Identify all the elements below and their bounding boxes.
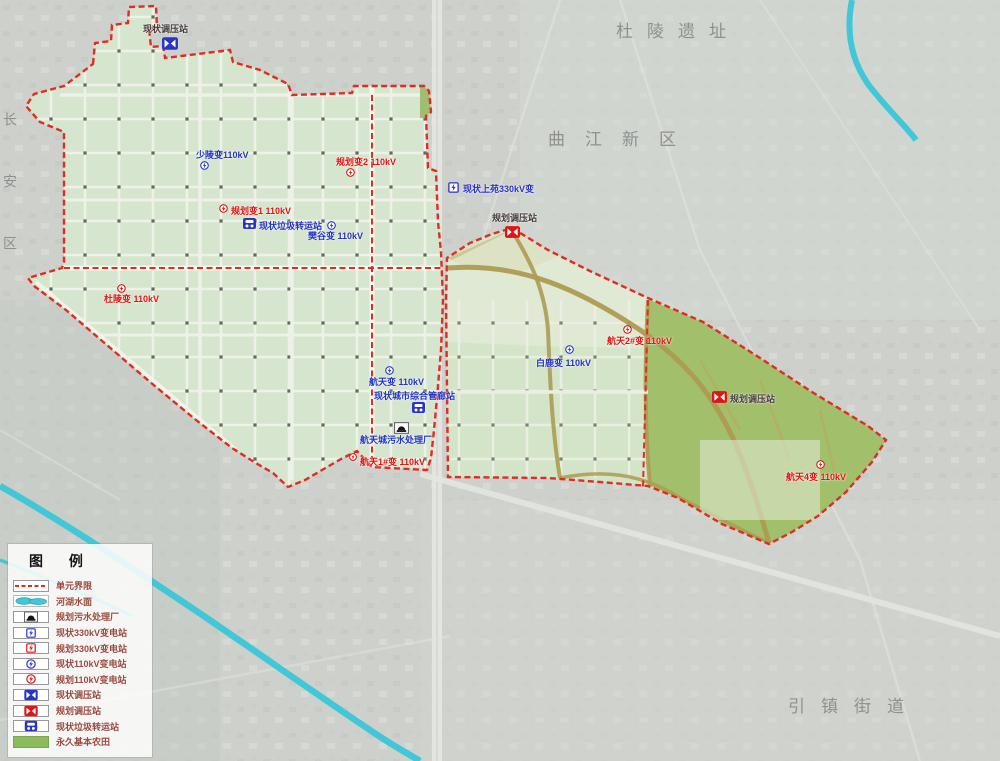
planned-gas-regulator-icon <box>13 705 49 717</box>
existing-gas-regulator-icon <box>13 689 49 701</box>
facility-label: 樊谷变 110kV <box>308 231 363 241</box>
planned-110kv-substation-icon <box>118 285 126 293</box>
legend-item-water: 河湖水面 <box>13 594 147 610</box>
planned-110kv-substation-icon <box>220 205 228 213</box>
legend-label: 现状调压站 <box>56 688 101 701</box>
planned-gas-regulator-icon <box>505 226 520 238</box>
existing-110kv-substation-icon <box>386 367 394 375</box>
legend: 图 例 单元界限 河湖水面 规划污水处理厂 现状330kV变电站 规划330kV… <box>8 544 152 757</box>
planned-110kv-substation-icon <box>624 326 632 334</box>
facility-label: 现状垃圾转运站 <box>259 221 322 231</box>
legend-item-boundary: 单元界限 <box>13 578 147 594</box>
facility-label: 现状上苑330kV变 <box>463 184 534 194</box>
legend-title: 图 例 <box>29 551 147 571</box>
facility-label: 规划变2 110kV <box>336 157 396 167</box>
facility-label: 规划变1 110kV <box>231 206 291 216</box>
existing-gas-regulator-icon <box>162 37 178 50</box>
legend-label: 规划330kV变电站 <box>56 642 127 655</box>
legend-item-existing-330kv: 现状330kV变电站 <box>13 625 147 641</box>
existing-110kv-substation-icon <box>566 346 574 354</box>
legend-label: 永久基本农田 <box>56 735 110 748</box>
legend-label: 河湖水面 <box>56 595 92 608</box>
facility-label: 航天城污水处理厂 <box>360 435 432 445</box>
facility-label: 白鹿变 110kV <box>536 358 591 368</box>
planned-110kv-substation-icon <box>350 454 357 461</box>
waste-transfer-station-icon <box>243 218 256 229</box>
planned-330kv-substation-icon <box>13 642 49 654</box>
facility-label: 规划调压站 <box>730 394 775 404</box>
legend-item-farmland: 永久基本农田 <box>13 734 147 750</box>
facility-label: 航天2#变 110kV <box>607 336 672 346</box>
legend-item-planned-110kv: 规划110kV变电站 <box>13 672 147 688</box>
facility-label: 杜陵变 110kV <box>104 294 159 304</box>
water-swatch <box>13 595 49 607</box>
facility-label: 航天变 110kV <box>369 377 424 387</box>
waste-transfer-station-icon <box>13 720 49 732</box>
existing-330kv-substation-icon <box>13 627 49 639</box>
farmland-swatch <box>13 736 49 748</box>
existing-110kv-substation-icon <box>201 162 209 170</box>
place-label-qujiang: 曲江新区 <box>548 125 696 150</box>
legend-label: 现状110kV变电站 <box>56 657 127 670</box>
facility-label: 现状城市综合管廊站 <box>374 391 455 401</box>
place-label-yinzhen: 引镇街道 <box>788 692 920 717</box>
planned-110kv-substation-icon <box>13 673 49 685</box>
planned-gas-regulator-icon <box>712 391 727 403</box>
legend-label: 单元界限 <box>56 579 92 592</box>
place-label-changan: 长安区 <box>0 112 20 298</box>
existing-110kv-substation-icon <box>13 658 49 670</box>
planned-110kv-substation-icon <box>817 461 825 469</box>
facility-label: 航天4变 110kV <box>786 472 846 482</box>
sewage-plant-icon <box>395 423 409 434</box>
planned-110kv-substation-icon <box>347 169 355 177</box>
legend-label: 现状垃圾转运站 <box>56 720 119 733</box>
legend-item-waste-transfer: 现状垃圾转运站 <box>13 718 147 734</box>
legend-item-planned-regulator: 规划调压站 <box>13 703 147 719</box>
place-label-duling: 杜陵遗址 <box>616 17 740 42</box>
legend-item-sewage-plant: 规划污水处理厂 <box>13 609 147 625</box>
legend-label: 规划污水处理厂 <box>56 610 119 623</box>
sewage-plant-icon <box>13 611 49 623</box>
utility-tunnel-station-icon <box>412 402 425 413</box>
legend-item-existing-110kv: 现状110kV变电站 <box>13 656 147 672</box>
facility-label: 规划调压站 <box>492 213 537 223</box>
planning-map: 现状调压站 少陵变110kV 规划变2 110kV 规划变1 110kV 现状垃… <box>0 0 1000 761</box>
existing-330kv-substation-icon <box>449 183 458 192</box>
boundary-swatch <box>13 580 49 592</box>
facility-label: 航天1#变 110kV <box>360 457 425 467</box>
legend-label: 规划调压站 <box>56 704 101 717</box>
facility-label: 现状调压站 <box>143 24 188 34</box>
legend-label: 现状330kV变电站 <box>56 626 127 639</box>
facility-label: 少陵变110kV <box>196 150 249 160</box>
legend-item-planned-330kv: 规划330kV变电站 <box>13 640 147 656</box>
legend-label: 规划110kV变电站 <box>56 673 127 686</box>
legend-item-existing-regulator: 现状调压站 <box>13 687 147 703</box>
existing-110kv-substation-icon <box>328 222 336 230</box>
